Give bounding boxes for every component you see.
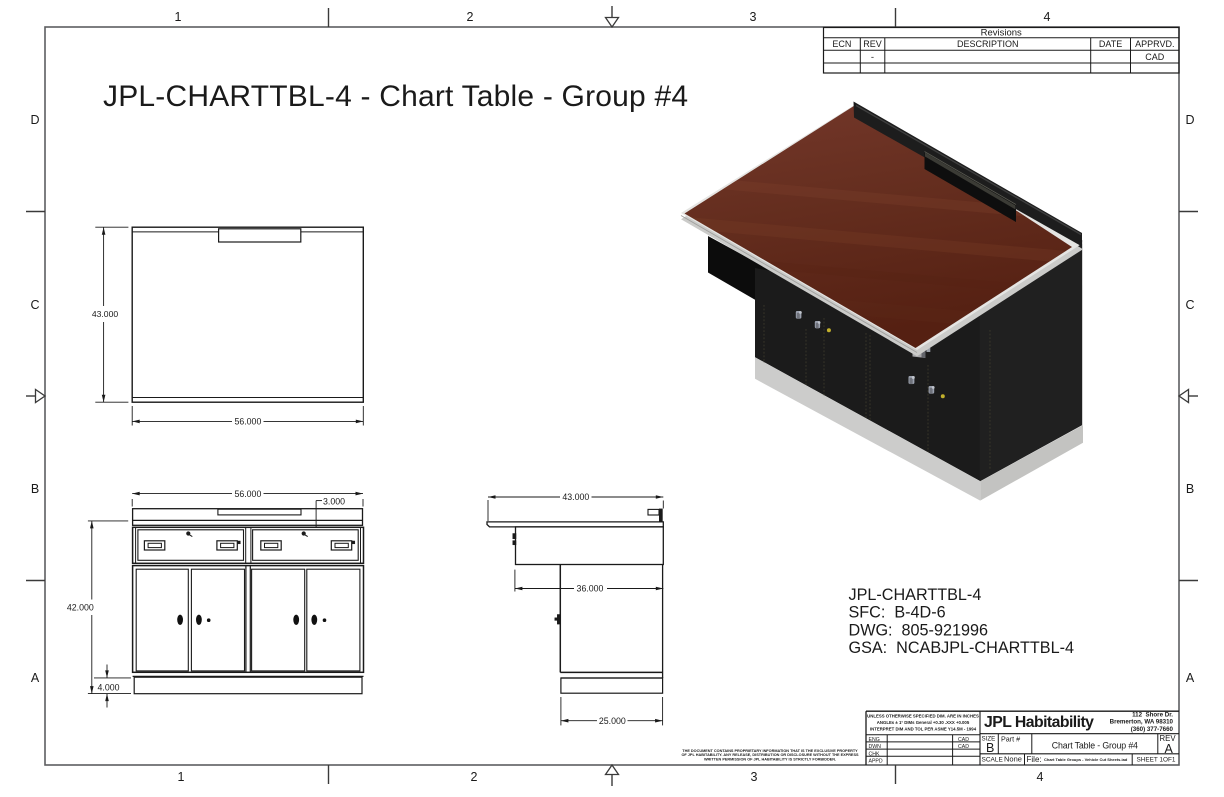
- svg-text:42.000: 42.000: [67, 603, 94, 613]
- svg-text:JPL-CHARTTBL-4: JPL-CHARTTBL-4: [849, 586, 982, 604]
- svg-text:ANGLEs ± 1° DIMs Genera: ANGLEs ± 1° DIMs General +0.30 .XXX +0.0…: [877, 720, 970, 725]
- svg-text:1: 1: [178, 770, 185, 784]
- svg-text:B: B: [986, 741, 994, 755]
- svg-text:SHEET 1OF1: SHEET 1OF1: [1137, 756, 1176, 763]
- svg-text:None: None: [1004, 755, 1022, 764]
- svg-text:C: C: [1185, 298, 1194, 312]
- svg-text:2: 2: [467, 10, 474, 24]
- svg-text:C: C: [30, 298, 39, 312]
- svg-text:A: A: [1186, 671, 1195, 685]
- svg-text:43.000: 43.000: [92, 309, 119, 319]
- svg-text:D: D: [1185, 113, 1194, 127]
- svg-text:D: D: [30, 113, 39, 127]
- svg-text:UNLESS OTHERWISE SPECIFIED DIM: UNLESS OTHERWISE SPECIFIED DIM. ARE IN I…: [867, 714, 979, 719]
- svg-text:JPL Habitability: JPL Habitability: [984, 714, 1094, 731]
- svg-text:CAD: CAD: [958, 737, 969, 743]
- svg-text:File:: File:: [1027, 755, 1042, 764]
- svg-text:WRITTEN PERMISSION OF JPL HABI: WRITTEN PERMISSION OF JPL HABITABILITY I…: [704, 757, 836, 761]
- svg-text:3: 3: [751, 770, 758, 784]
- svg-text:INTERPRET DIM AND TOL PER ASME: INTERPRET DIM AND TOL PER ASME Y14.5M - …: [870, 727, 977, 732]
- svg-text:Bremerton, WA 98310: Bremerton, WA 98310: [1110, 719, 1174, 726]
- svg-text:Chart Table - Group #4: Chart Table - Group #4: [1052, 741, 1138, 751]
- svg-text:(360) 377-7660: (360) 377-7660: [1131, 726, 1174, 733]
- svg-text:REV: REV: [863, 39, 882, 49]
- svg-text:ENG: ENG: [869, 737, 880, 743]
- svg-text:DESCRIPTION: DESCRIPTION: [957, 39, 1019, 49]
- svg-text:APPRVD.: APPRVD.: [1135, 39, 1174, 49]
- svg-text:CAD: CAD: [1145, 52, 1165, 62]
- svg-text:SFC: B-4D-6: SFC: B-4D-6: [849, 604, 946, 622]
- svg-text:1: 1: [175, 10, 182, 24]
- svg-text:3.000: 3.000: [323, 496, 345, 506]
- svg-text:APPD: APPD: [869, 758, 883, 764]
- svg-text:DWN: DWN: [869, 744, 882, 750]
- svg-text:ECN: ECN: [832, 39, 851, 49]
- svg-text:A: A: [31, 671, 40, 685]
- svg-text:DATE: DATE: [1099, 39, 1122, 49]
- svg-text:DWG: 805-921996: DWG: 805-921996: [849, 621, 988, 639]
- svg-text:36.000: 36.000: [577, 584, 604, 594]
- svg-text:4.000: 4.000: [97, 683, 119, 693]
- svg-text:B: B: [1186, 482, 1194, 496]
- svg-text:3: 3: [750, 10, 757, 24]
- svg-text:25.000: 25.000: [599, 716, 626, 726]
- svg-text:2: 2: [471, 770, 478, 784]
- svg-text:56.000: 56.000: [234, 417, 261, 427]
- svg-text:GSA: NCABJPL-CHARTTBL-4: GSA: NCABJPL-CHARTTBL-4: [849, 639, 1074, 657]
- svg-text:43.000: 43.000: [562, 492, 589, 502]
- svg-text:-: -: [871, 52, 874, 63]
- svg-text:Part #: Part #: [1001, 735, 1020, 744]
- svg-text:Revisions: Revisions: [981, 28, 1022, 39]
- svg-text:112 Shore Dr.: 112 Shore Dr.: [1132, 712, 1173, 719]
- svg-text:4: 4: [1037, 770, 1044, 784]
- svg-text:Chart Table Groups - Vehicle C: Chart Table Groups - Vehicle Cut Sheets.…: [1044, 757, 1128, 762]
- svg-text:B: B: [31, 482, 39, 496]
- svg-text:JPL-CHARTTBL-4 - Chart Table -: JPL-CHARTTBL-4 - Chart Table - Group #4: [103, 80, 688, 113]
- svg-text:4: 4: [1044, 10, 1051, 24]
- svg-text:CHK: CHK: [869, 751, 880, 757]
- svg-text:56.000: 56.000: [234, 489, 261, 499]
- svg-text:SCALE: SCALE: [982, 756, 1004, 763]
- svg-text:CAD: CAD: [958, 744, 969, 750]
